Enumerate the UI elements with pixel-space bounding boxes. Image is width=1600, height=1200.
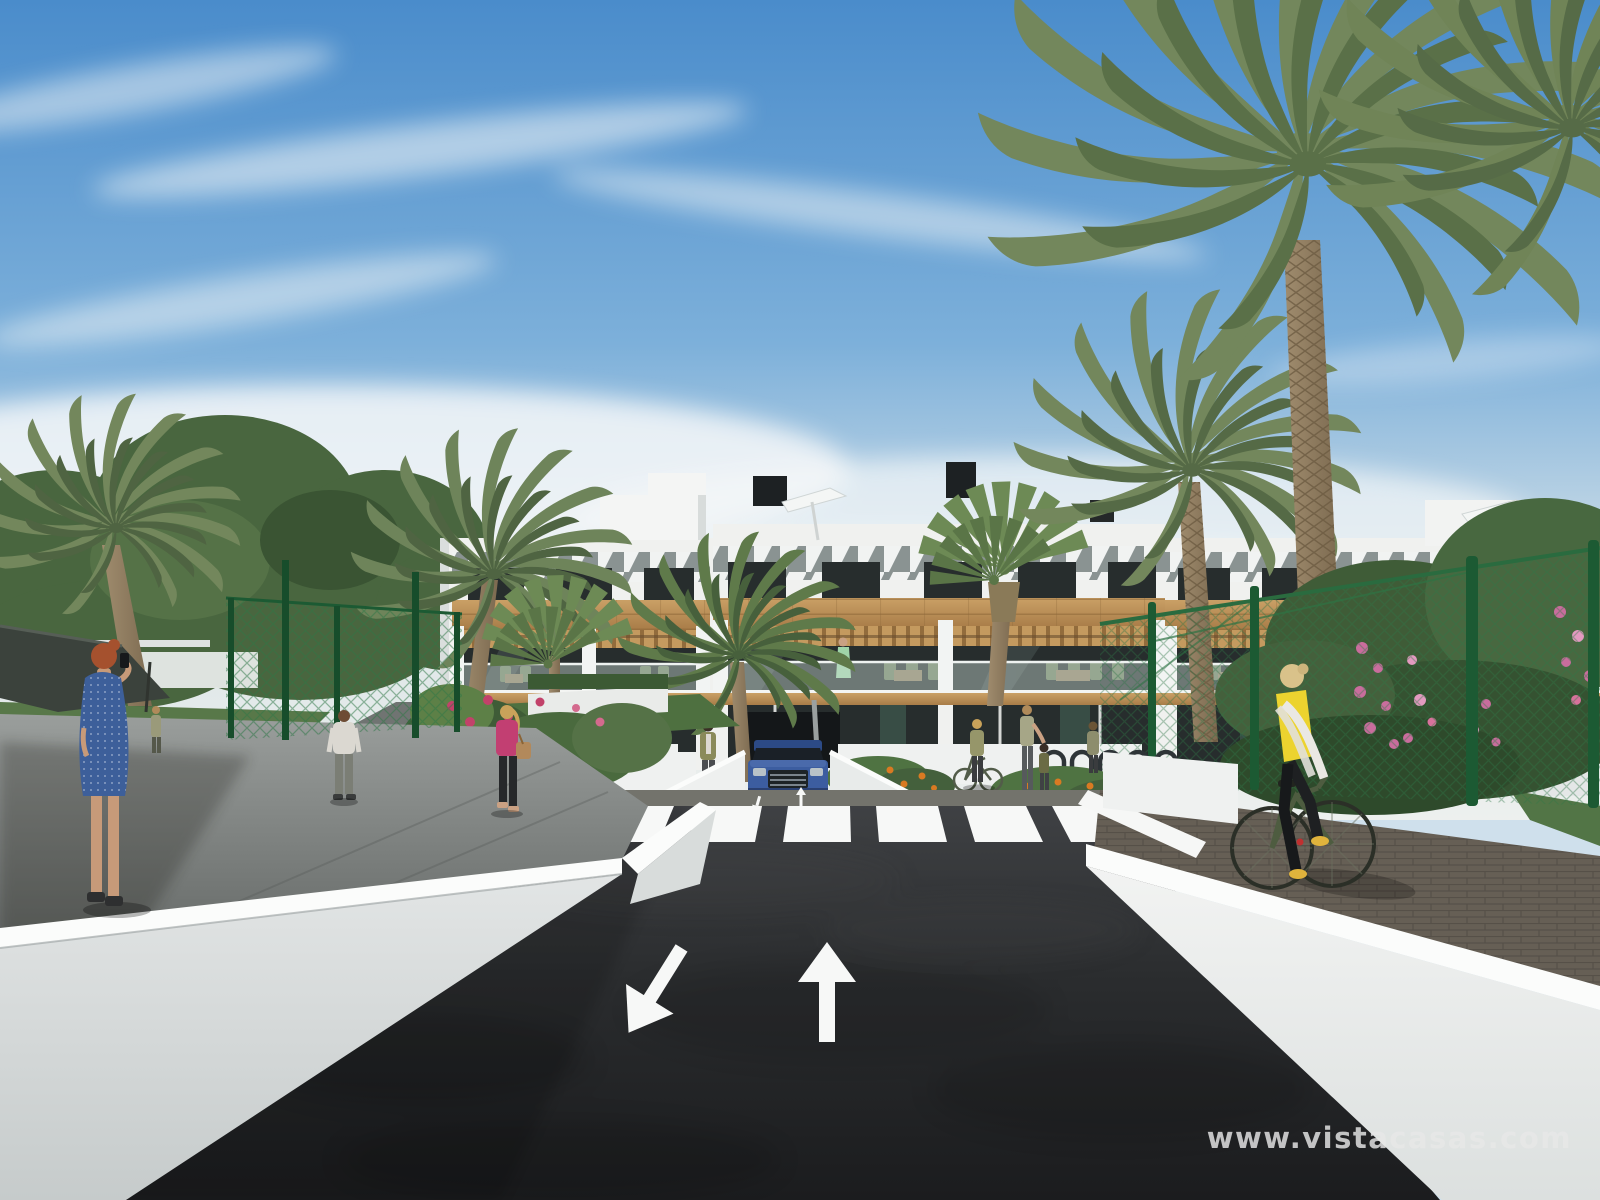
car-headlight bbox=[810, 768, 823, 776]
render-image: www.vistacasas.com bbox=[0, 0, 1600, 1200]
handbag bbox=[516, 742, 531, 759]
bike-reflector bbox=[1297, 839, 1304, 846]
watermark: www.vistacasas.com bbox=[1207, 1121, 1572, 1155]
scene-svg: www.vistacasas.com bbox=[0, 0, 1600, 1200]
car-headlight bbox=[753, 768, 766, 776]
phone bbox=[120, 653, 129, 668]
crosswalk-stripe bbox=[783, 806, 851, 842]
crosswalk-stripe bbox=[876, 806, 947, 842]
chimney-vent bbox=[753, 476, 787, 506]
